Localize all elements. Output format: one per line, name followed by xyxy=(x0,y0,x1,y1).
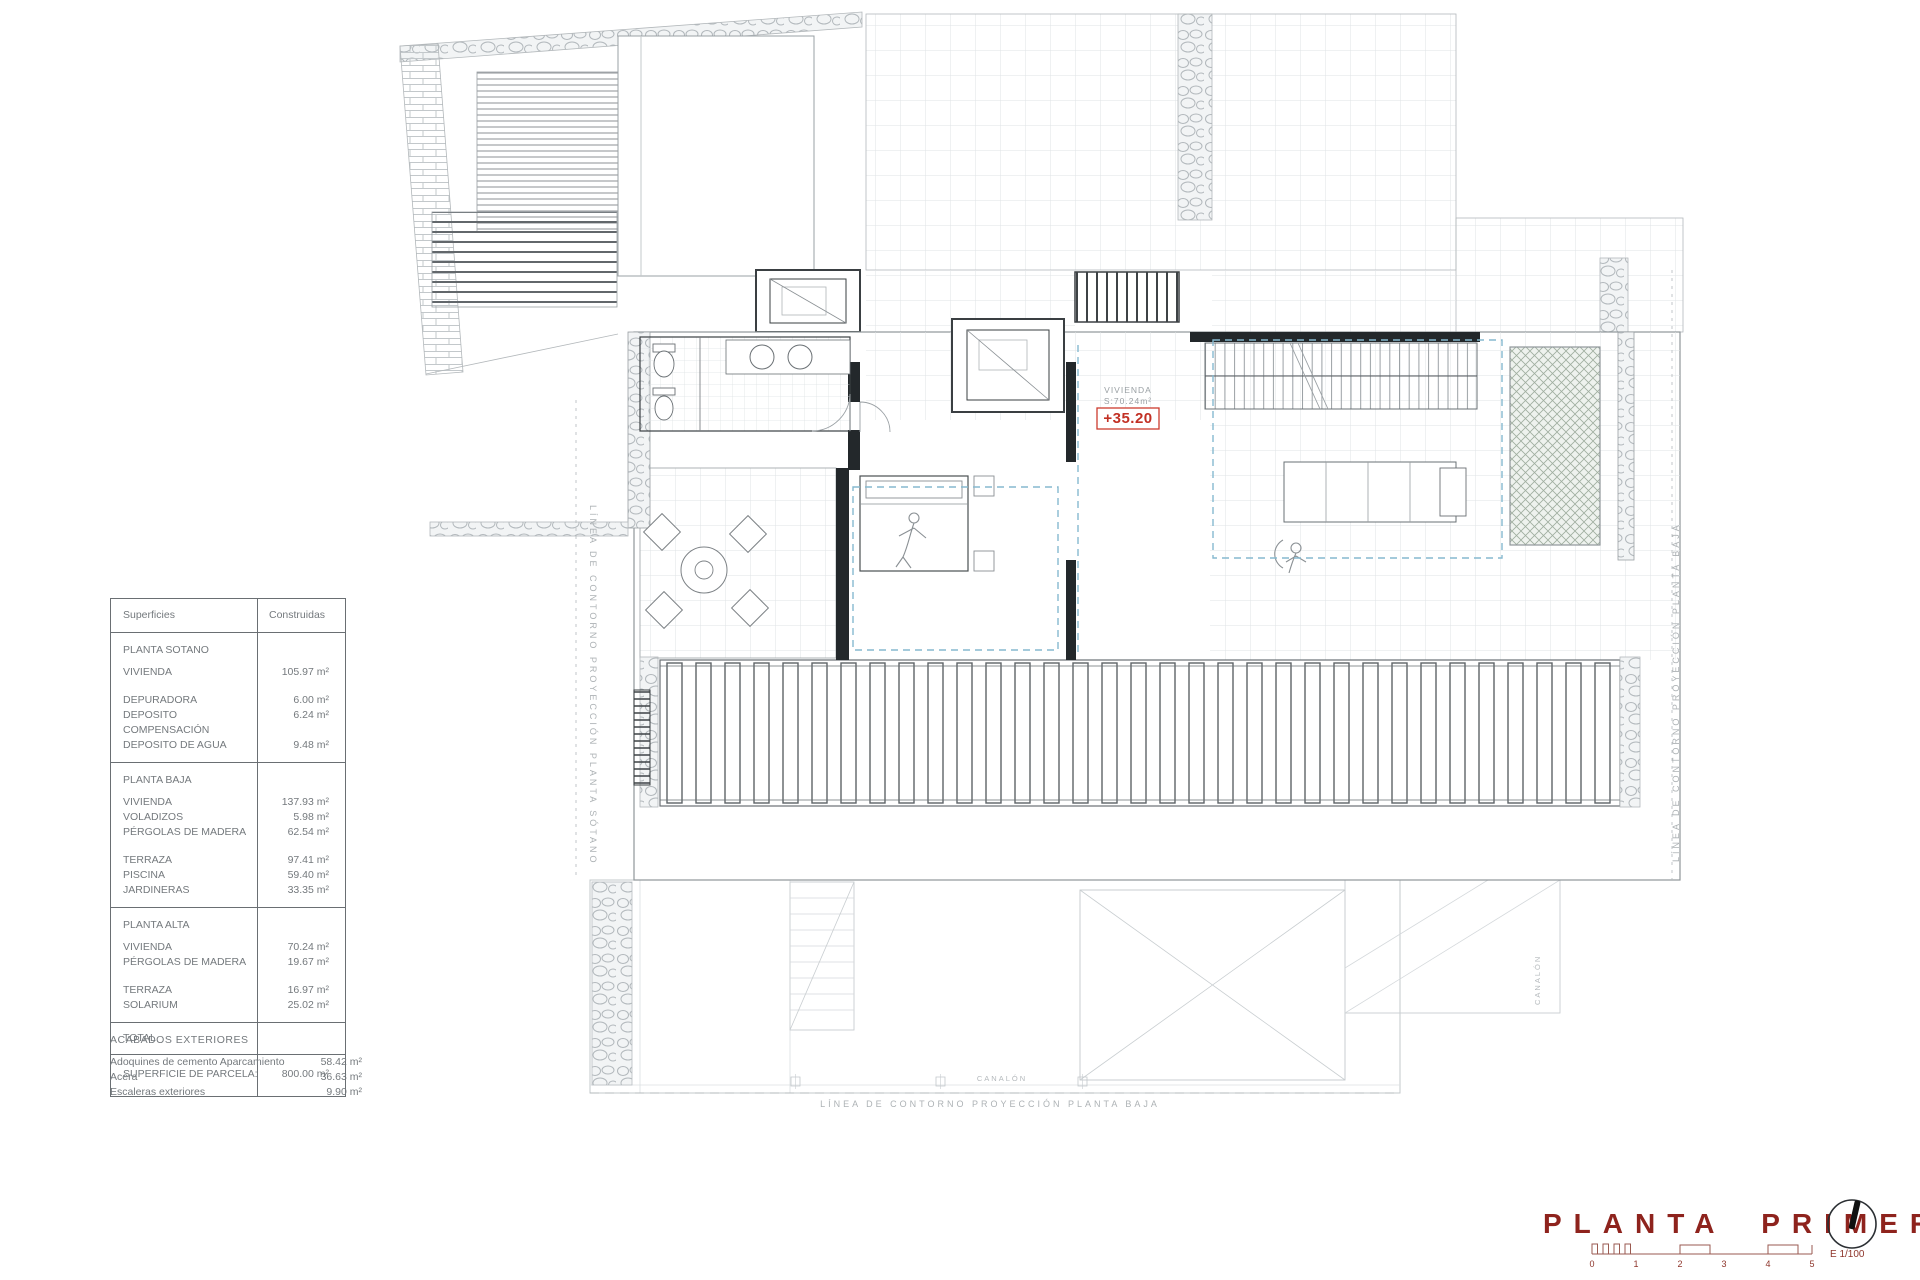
living-tiles xyxy=(1210,420,1680,660)
row-label: DEPURADORA xyxy=(123,693,259,708)
table-row: VIVIENDA 137.93 m² xyxy=(111,795,345,810)
gutter-label-3: CANALÓN xyxy=(1533,955,1542,1005)
finish-label: Acera xyxy=(110,1070,304,1085)
table-row: TERRAZA 97.41 m² xyxy=(111,853,345,868)
contour-label-left: LÍNEA DE CONTORNO PROYECCIÓN PLANTA SÓTA… xyxy=(588,505,598,866)
contour-label-bottom: LÍNEA DE CONTORNO PROYECCIÓN PLANTA BAJA xyxy=(820,1099,1160,1109)
section-title: PLANTA SOTANO xyxy=(111,643,345,658)
row-label: SOLARIUM xyxy=(123,998,259,1013)
row-label: TERRAZA xyxy=(123,983,259,998)
finish-value: 9.90 m² xyxy=(304,1085,362,1100)
sink-1 xyxy=(750,345,774,369)
finish-value: 58.42 m² xyxy=(304,1055,362,1070)
row-label: JARDINERAS xyxy=(123,883,259,898)
row-value: 33.35 m² xyxy=(259,883,329,898)
row-label: VOLADIZOS xyxy=(123,810,259,825)
finishes-title: ACABADOS EXTERIORES xyxy=(110,1034,362,1046)
scale-tick-3: 3 xyxy=(1721,1259,1726,1269)
room-area-label: S:70.24m² xyxy=(1104,396,1152,406)
main-plan: VIVIENDA S:70.24m² +35.20 xyxy=(430,319,1680,880)
section-planta-baja: PLANTA BAJA VIVIENDA 137.93 m² VOLADIZOS… xyxy=(111,763,345,908)
section-title: PLANTA ALTA xyxy=(111,918,345,933)
stone-wall-east-plan xyxy=(1618,332,1634,560)
scale-tick-2: 2 xyxy=(1677,1259,1682,1269)
row-spacer xyxy=(111,970,345,983)
desk-return xyxy=(1440,468,1466,516)
table-row: TERRAZA 16.97 m² xyxy=(111,983,345,998)
table-row: DEPOSITO DE AGUA 9.48 m² xyxy=(111,738,345,753)
row-label: VIVIENDA xyxy=(123,795,259,810)
finish-label: Adoquines de cemento Aparcamiento xyxy=(110,1055,304,1070)
scale-tick-4: 4 xyxy=(1765,1259,1770,1269)
level-mark-value: +35.20 xyxy=(1103,410,1152,427)
section-planta-alta: PLANTA ALTA VIVIENDA 70.24 m² PÉRGOLAS D… xyxy=(111,908,345,1023)
table-header: Superficies Construidas xyxy=(111,599,345,633)
row-spacer xyxy=(111,840,345,853)
deck-planks xyxy=(660,660,1620,806)
gutter-label-2: CANALÓN xyxy=(977,1074,1027,1083)
section-title: PLANTA BAJA xyxy=(111,773,345,788)
table-row: PÉRGOLAS DE MADERA 62.54 m² xyxy=(111,825,345,840)
scale-tick-1: 1 xyxy=(1633,1259,1638,1269)
side-louver xyxy=(634,690,650,785)
scale-comb xyxy=(1592,1244,1636,1254)
row-label: PISCINA xyxy=(123,868,259,883)
finish-value: 36.63 m² xyxy=(304,1070,362,1085)
court-tiles-east xyxy=(1456,218,1683,332)
table-row: SOLARIUM 25.02 m² xyxy=(111,998,345,1013)
table-row: VIVIENDA 70.24 m² xyxy=(111,940,345,955)
row-value: 97.41 m² xyxy=(259,853,329,868)
elevator-shaft xyxy=(952,319,1064,412)
row-value: 6.00 m² xyxy=(259,693,329,708)
row-label: PÉRGOLAS DE MADERA xyxy=(123,955,259,970)
table-row: VOLADIZOS 5.98 m² xyxy=(111,810,345,825)
row-value: 6.24 m² xyxy=(259,708,329,738)
table-row: VIVIENDA 105.97 m² xyxy=(111,665,345,680)
staircase xyxy=(1205,343,1477,409)
planter-jardinera xyxy=(1510,347,1600,545)
stone-wall-east xyxy=(1600,258,1628,332)
row-value: 16.97 m² xyxy=(259,983,329,998)
row-value: 59.40 m² xyxy=(259,868,329,883)
row-value: 9.48 m² xyxy=(259,738,329,753)
table-row: PÉRGOLAS DE MADERA 19.67 m² xyxy=(111,955,345,970)
scale-steps xyxy=(1680,1245,1812,1254)
section-planta-sotano: PLANTA SOTANO VIVIENDA 105.97 m² DEPURAD… xyxy=(111,633,345,763)
finish-label: Escaleras exteriores xyxy=(110,1085,304,1100)
stone-pier xyxy=(592,882,632,1085)
bidet xyxy=(653,388,675,420)
terrace-tiles xyxy=(640,468,836,658)
room-name-label: VIVIENDA xyxy=(1104,385,1152,395)
row-label: DEPOSITO COMPENSACIÓN xyxy=(123,708,259,738)
scale-tick-5: 5 xyxy=(1809,1259,1814,1269)
scale-label: E 1/100 xyxy=(1830,1249,1865,1260)
top-right-court xyxy=(756,14,1683,332)
finish-row: Adoquines de cemento Aparcamiento 58.42 … xyxy=(110,1055,362,1070)
toilet xyxy=(653,344,675,377)
exterior-finishes: ACABADOS EXTERIORES Adoquines de cemento… xyxy=(110,1034,362,1100)
row-label: DEPOSITO DE AGUA xyxy=(123,738,259,753)
col-header-construidas: Construidas xyxy=(257,608,345,623)
contour-label-right: LÍNEA DE CONTORNO PROYECCIÓN PLANTA BAJA xyxy=(1671,522,1681,862)
scale-tick-0: 0 xyxy=(1589,1259,1594,1269)
sink-2 xyxy=(788,345,812,369)
table-row: JARDINERAS 33.35 m² xyxy=(111,883,345,898)
table-row: DEPOSITO COMPENSACIÓN 6.24 m² xyxy=(111,708,345,738)
row-label: TERRAZA xyxy=(123,853,259,868)
table-column-divider xyxy=(257,599,258,1096)
row-value: 137.93 m² xyxy=(259,795,329,810)
lower-floor-projection: LÍNEA DE CONTORNO PROYECCIÓN PLANTA BAJA… xyxy=(590,867,1560,1110)
skylight-opening xyxy=(618,36,814,276)
row-value: 70.24 m² xyxy=(259,940,329,955)
row-label: PÉRGOLAS DE MADERA xyxy=(123,825,259,840)
stone-wall-column xyxy=(1178,14,1212,220)
drawing-sheet: LÍNEA DE CONTORNO PROYECCIÓN PLANTA BAJA… xyxy=(0,0,1920,1280)
table-row: DEPURADORA 6.00 m² xyxy=(111,693,345,708)
scale-bar: 0 1 2 3 4 5 E 1/100 xyxy=(1582,1238,1920,1280)
court-tiles xyxy=(866,14,1456,270)
areas-table: Superficies Construidas PLANTA SOTANO VI… xyxy=(110,598,346,1097)
left-brick-band xyxy=(400,44,463,375)
row-value: 25.02 m² xyxy=(259,998,329,1013)
court-tiles-strip-east xyxy=(1212,270,1456,332)
desk xyxy=(1284,462,1456,522)
projection-outline xyxy=(590,880,1400,1093)
row-value: 62.54 m² xyxy=(259,825,329,840)
row-spacer xyxy=(111,680,345,693)
row-label: VIVIENDA xyxy=(123,940,259,955)
finish-row: Escaleras exteriores 9.90 m² xyxy=(110,1085,362,1100)
bathroom xyxy=(640,337,850,431)
deck-stone-east xyxy=(1620,657,1640,807)
col-header-superficies: Superficies xyxy=(123,608,257,623)
row-value: 19.67 m² xyxy=(259,955,329,970)
table-row: PISCINA 59.40 m² xyxy=(111,868,345,883)
row-label: VIVIENDA xyxy=(123,665,259,680)
finish-row: Acera 36.63 m² xyxy=(110,1070,362,1085)
louver-grille-bars xyxy=(1075,272,1179,322)
roof-hatch-box xyxy=(756,270,860,332)
pergola-slats-upper xyxy=(477,72,620,232)
row-value: 105.97 m² xyxy=(259,665,329,680)
pergola-slats-lower xyxy=(432,212,617,307)
row-value: 5.98 m² xyxy=(259,810,329,825)
